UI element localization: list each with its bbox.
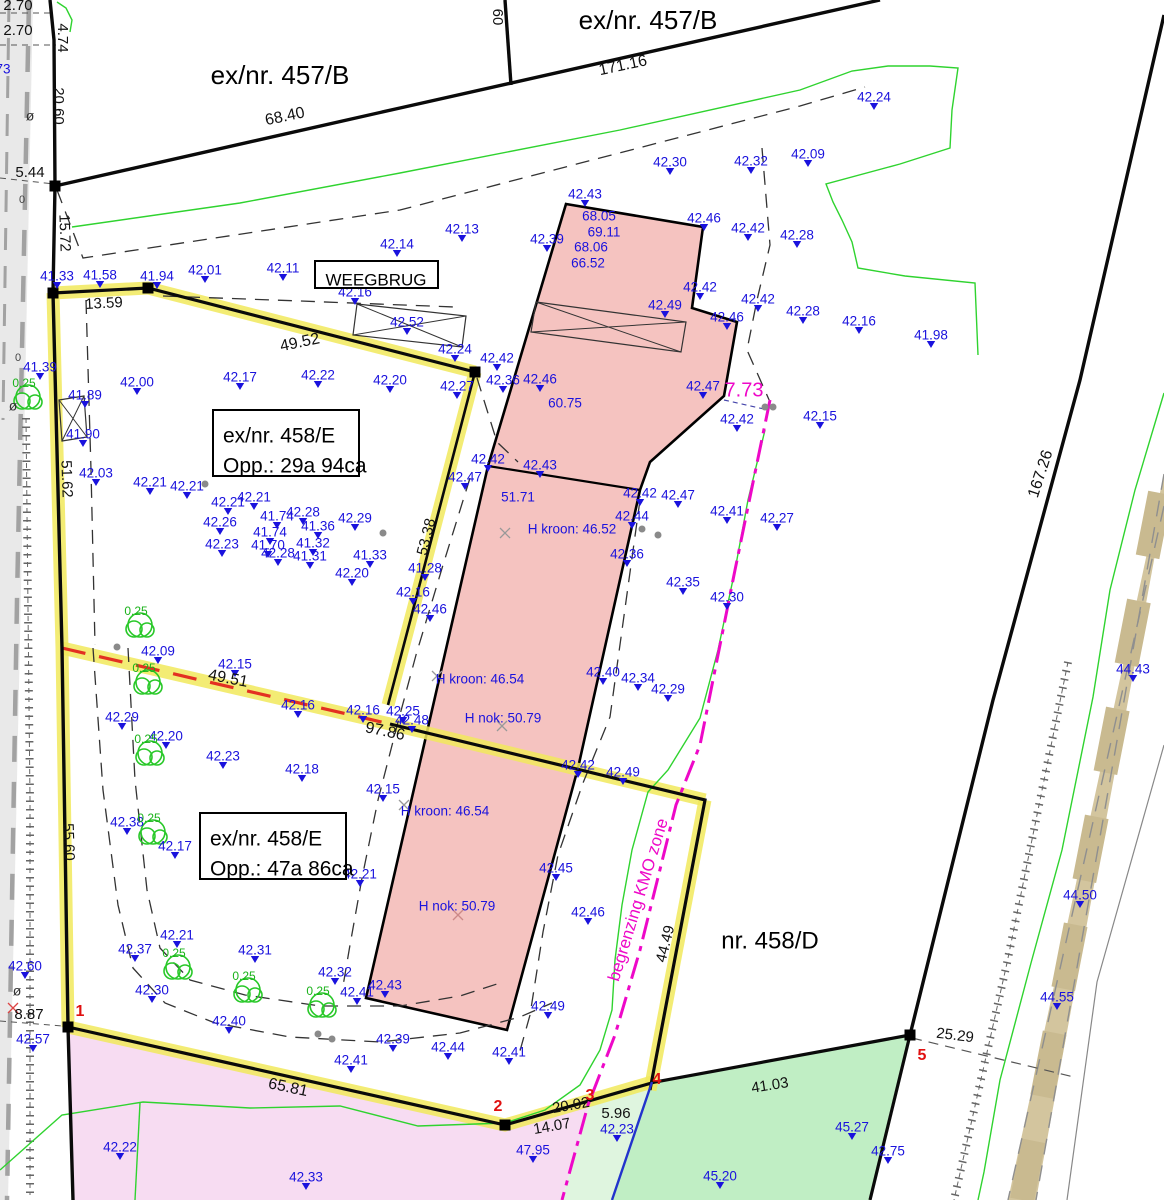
elevation-point-marker-icon bbox=[584, 918, 592, 925]
elevation-point-label: 42.27 bbox=[760, 511, 794, 526]
elevation-point-marker-icon bbox=[347, 1066, 355, 1073]
map-text-label: 2 bbox=[494, 1098, 503, 1115]
elevation-point-marker-icon bbox=[225, 1027, 233, 1034]
elevation-point-label: H kroon: 46.54 bbox=[436, 672, 525, 687]
elevation-point-label: 42.28 bbox=[780, 228, 814, 243]
utility-marker-icon bbox=[329, 1036, 336, 1043]
elevation-point-label: 42.28 bbox=[786, 304, 820, 319]
boundary-monument bbox=[48, 288, 59, 299]
elevation-point-label: 42.39 bbox=[530, 232, 564, 247]
elevation-point-marker-icon bbox=[162, 742, 170, 749]
map-text-label: ø bbox=[26, 108, 35, 124]
elevation-point-label: 42.46 bbox=[571, 905, 605, 920]
elevation-point-marker-icon bbox=[723, 517, 731, 524]
map-text-label: 15.72 bbox=[55, 214, 73, 252]
elevation-point-label: 42.41 bbox=[492, 1045, 526, 1060]
elevation-point-marker-icon bbox=[279, 274, 287, 281]
elevation-point-label: 42.15 bbox=[366, 782, 400, 797]
map-text-label: 0 bbox=[15, 352, 21, 364]
elevation-point-marker-icon bbox=[444, 1053, 452, 1060]
elevation-point-marker-icon bbox=[679, 588, 687, 595]
elevation-point-label: 42.29 bbox=[651, 682, 685, 697]
parcel-info-box-1-text: Opp.: 29a 94ca bbox=[223, 455, 367, 478]
elevation-point-label: 42.43 bbox=[523, 458, 557, 473]
elevation-point-label: 42.20 bbox=[335, 566, 369, 581]
map-text-label: 13.59 bbox=[85, 294, 123, 313]
map-text-label: 5 bbox=[918, 1047, 927, 1064]
utility-marker-icon bbox=[770, 404, 777, 411]
elevation-point-label: 42.42 bbox=[731, 221, 765, 236]
elevation-point-label: 42.21 bbox=[160, 928, 194, 943]
elevation-point-marker-icon bbox=[634, 684, 642, 691]
elevation-point-marker-icon bbox=[81, 401, 89, 408]
elevation-point-marker-icon bbox=[331, 978, 339, 985]
elevation-point-label: 41.58 bbox=[83, 268, 117, 283]
elevation-point-label: 42.30 bbox=[653, 155, 687, 170]
elevation-point-marker-icon bbox=[723, 603, 731, 610]
elevation-point-label: 66.52 bbox=[571, 256, 605, 271]
elevation-point-label: 42.13 bbox=[445, 222, 479, 237]
elevation-point-label: 42.18 bbox=[285, 762, 319, 777]
elevation-point-marker-icon bbox=[219, 762, 227, 769]
elevation-point-label: 41.36 bbox=[301, 519, 335, 534]
elevation-point-label: 68.06 bbox=[574, 240, 608, 255]
boundary-monument bbox=[50, 181, 61, 192]
elevation-point-marker-icon bbox=[236, 383, 244, 390]
elevation-point-marker-icon bbox=[146, 488, 154, 495]
elevation-point-marker-icon bbox=[171, 852, 179, 859]
elevation-point-marker-icon bbox=[458, 235, 466, 242]
elevation-point-marker-icon bbox=[733, 425, 741, 432]
elevation-point-label: 42.33 bbox=[289, 1170, 323, 1185]
elevation-point-label: 42.75 bbox=[871, 1144, 905, 1159]
veg-line-railway bbox=[978, 393, 1164, 1200]
utility-marker-icon bbox=[380, 530, 387, 537]
boundary-monument bbox=[905, 1030, 916, 1041]
elevation-point-label: 42.46 bbox=[710, 310, 744, 325]
elevation-point-label: 42.23 bbox=[205, 537, 239, 552]
elevation-point-label: 42.57 bbox=[16, 1032, 50, 1047]
elevation-point-marker-icon bbox=[274, 559, 282, 566]
map-text-label: 0.25 bbox=[306, 984, 330, 998]
elevation-point-label: H kroon: 46.54 bbox=[401, 804, 490, 819]
elevation-point-label: 42.11 bbox=[267, 261, 300, 276]
elevation-point-label: 42.43 bbox=[568, 187, 602, 202]
elevation-point-label: 42.49 bbox=[606, 765, 640, 780]
elevation-point-marker-icon bbox=[544, 1012, 552, 1019]
map-text-label: 0.25 bbox=[132, 661, 156, 675]
embankment-line-left bbox=[26, 418, 30, 1195]
boundary-monument bbox=[143, 283, 154, 294]
utility-marker-icon bbox=[655, 532, 662, 539]
elevation-point-marker-icon bbox=[251, 956, 259, 963]
elevation-point-label: 42.31 bbox=[238, 943, 272, 958]
elevation-point-label: 42.42 bbox=[720, 412, 754, 427]
map-text-label: 2.70 bbox=[3, 22, 32, 39]
elevation-point-label: 41.28 bbox=[408, 561, 442, 576]
map-text-label: 55.60 bbox=[59, 823, 77, 861]
boundary-monument bbox=[500, 1120, 511, 1131]
elevation-point-label: 42.23 bbox=[206, 749, 240, 764]
elevation-point-label: 44.55 bbox=[1040, 990, 1074, 1005]
elevation-point-marker-icon bbox=[799, 317, 807, 324]
map-text-label: 167.26 bbox=[1025, 448, 1056, 500]
elevation-point-marker-icon bbox=[79, 440, 87, 447]
elevation-point-marker-icon bbox=[298, 775, 306, 782]
elevation-point-marker-icon bbox=[250, 503, 258, 510]
elevation-point-label: 42.21 bbox=[170, 479, 204, 494]
elevation-point-label: 42.41 bbox=[710, 504, 744, 519]
elevation-point-label: 42.42 bbox=[471, 452, 505, 467]
elevation-point-label: 42.17 bbox=[158, 839, 192, 854]
elevation-point-label: 45.20 bbox=[703, 1169, 737, 1184]
elevation-point-marker-icon bbox=[773, 524, 781, 531]
elevation-point-label: 42.39 bbox=[376, 1032, 410, 1047]
elevation-point-marker-icon bbox=[393, 250, 401, 257]
elevation-point-label: 42.32 bbox=[318, 965, 352, 980]
elevation-point-label: 42.23 bbox=[600, 1122, 634, 1137]
map-text-label: 25.29 bbox=[935, 1025, 974, 1046]
utility-marker-icon bbox=[639, 526, 646, 533]
elevation-point-label: 69.11 bbox=[588, 225, 621, 240]
elevation-point-label: 44.43 bbox=[1116, 662, 1150, 677]
map-text-label: 20.60 bbox=[50, 87, 67, 125]
boundary-monument bbox=[63, 1022, 74, 1033]
map-text-label: 5.96 bbox=[601, 1105, 630, 1122]
elevation-point-marker-icon bbox=[927, 341, 935, 348]
elevation-point-label: 41.33 bbox=[353, 548, 387, 563]
elevation-point-marker-icon bbox=[306, 562, 314, 569]
weegbrug-label-box-text: WEEGBRUG bbox=[325, 270, 426, 289]
elevation-point-marker-icon bbox=[747, 167, 755, 174]
map-text-label: 5.44 bbox=[15, 164, 44, 181]
elevation-point-label: 42.42 bbox=[623, 486, 657, 501]
elevation-point-label: H kroon: 46.52 bbox=[528, 522, 617, 537]
elevation-point-label: 45.27 bbox=[835, 1120, 869, 1135]
elevation-point-marker-icon bbox=[201, 276, 209, 283]
elevation-point-label: 42.29 bbox=[338, 511, 372, 526]
elevation-point-marker-icon bbox=[123, 828, 131, 835]
elevation-point-label: 42.01 bbox=[188, 263, 222, 278]
elevation-point-label: 42.42 bbox=[561, 758, 595, 773]
elevation-point-marker-icon bbox=[216, 528, 224, 535]
elevation-point-marker-icon bbox=[505, 1058, 513, 1065]
elevation-point-label: 42.22 bbox=[301, 368, 335, 383]
tie-dash-773 bbox=[724, 400, 764, 409]
elevation-point-label: 41.39 bbox=[23, 360, 57, 375]
elevation-point-label: 42.40 bbox=[586, 665, 620, 680]
elevation-point-label: 42.32 bbox=[734, 154, 768, 169]
elevation-point-label: 42.49 bbox=[648, 298, 682, 313]
elevation-point-label: 42.46 bbox=[413, 602, 447, 617]
elevation-point-label: 42.45 bbox=[539, 861, 573, 876]
elevation-point-label: 42.30 bbox=[710, 590, 744, 605]
old-boundary-dash-3 bbox=[747, 148, 770, 402]
elevation-point-label: 73 bbox=[0, 62, 11, 77]
elevation-point-label: 51.71 bbox=[501, 490, 535, 505]
elevation-point-label: 42.36 bbox=[610, 547, 644, 562]
elevation-point-marker-icon bbox=[92, 479, 100, 486]
elevation-point-label: 41.31 bbox=[293, 549, 327, 564]
elevation-point-label: 41.89 bbox=[68, 388, 102, 403]
elevation-point-label: 42.28 bbox=[286, 505, 320, 520]
elevation-point-label: 44.50 bbox=[1063, 888, 1097, 903]
elevation-point-label: 42.27 bbox=[440, 379, 474, 394]
parcel-info-box-2-text: ex/nr. 458/E bbox=[210, 828, 322, 851]
survey-plan-page: 41.3341.5841.9442.0142.1142.1442.1642.52… bbox=[0, 0, 1164, 1200]
map-text-label: 4.74 bbox=[54, 23, 71, 52]
elevation-point-label: 42.16 bbox=[842, 314, 876, 329]
elevation-point-marker-icon bbox=[36, 373, 44, 380]
boundary-monument bbox=[470, 367, 481, 378]
elevation-point-marker-icon bbox=[118, 723, 126, 730]
elevation-point-marker-icon bbox=[131, 955, 139, 962]
elevation-point-label: 42.15 bbox=[803, 409, 837, 424]
elevation-point-label: 42.52 bbox=[390, 315, 424, 330]
map-text-label: 51.62 bbox=[57, 460, 75, 498]
elevation-point-label: 42.44 bbox=[431, 1040, 465, 1055]
utility-marker-icon bbox=[315, 1031, 322, 1038]
map-text-label: 3 bbox=[586, 1087, 595, 1104]
map-text-label: 171.16 bbox=[597, 52, 649, 79]
map-text-label: 0 bbox=[19, 194, 25, 206]
elevation-point-label: 42.03 bbox=[79, 466, 113, 481]
elevation-point-marker-icon bbox=[351, 524, 359, 531]
elevation-point-label: 42.16 bbox=[396, 585, 430, 600]
elevation-point-marker-icon bbox=[453, 392, 461, 399]
parcel-info-box-1-text: ex/nr. 458/E bbox=[223, 425, 335, 448]
elevation-point-label: 41.33 bbox=[40, 269, 74, 284]
elevation-point-marker-icon bbox=[379, 795, 387, 802]
elevation-point-label: 42.09 bbox=[791, 147, 825, 162]
map-text-label: 8.87 bbox=[14, 1006, 43, 1023]
elevation-point-label: 42.16 bbox=[346, 703, 380, 718]
elevation-point-label: 42.14 bbox=[380, 237, 414, 252]
elevation-point-label: 42.46 bbox=[687, 211, 721, 226]
elevation-point-marker-icon bbox=[804, 160, 812, 167]
elevation-point-label: 42.35 bbox=[666, 575, 700, 590]
elevation-point-marker-icon bbox=[543, 245, 551, 252]
map-text-label: ø bbox=[9, 398, 18, 414]
map-text-label: 0.25 bbox=[162, 946, 186, 960]
elevation-point-label: 42.24 bbox=[438, 342, 472, 357]
elevation-point-marker-icon bbox=[21, 972, 29, 979]
map-text-label: 0.25 bbox=[137, 811, 161, 825]
elevation-point-label: 60.75 bbox=[548, 396, 582, 411]
elevation-point-marker-icon bbox=[386, 386, 394, 393]
elevation-point-label: 42.09 bbox=[141, 644, 175, 659]
elevation-point-marker-icon bbox=[294, 711, 302, 718]
parcel-info-box-2-text: Opp.: 47a 86ca bbox=[210, 858, 354, 881]
veg-line-north bbox=[72, 66, 978, 355]
elevation-point-label: 42.28 bbox=[261, 546, 295, 561]
map-text-label: 0.25 bbox=[232, 969, 256, 983]
map-text-label: nr. 458/D bbox=[721, 927, 818, 954]
elevation-point-marker-icon bbox=[403, 328, 411, 335]
elevation-point-marker-icon bbox=[356, 880, 364, 887]
elevation-point-label: 42.42 bbox=[480, 351, 514, 366]
elevation-point-label: 42.42 bbox=[683, 280, 717, 295]
elevation-point-label: 42.26 bbox=[203, 515, 237, 530]
map-text-label: 7.73 bbox=[725, 379, 764, 401]
elevation-point-label: 42.40 bbox=[212, 1014, 246, 1029]
elevation-point-label: 42.37 bbox=[118, 942, 152, 957]
map-text-label: 0.25 bbox=[134, 732, 158, 746]
elevation-point-label: H nok: 50.79 bbox=[419, 899, 496, 914]
elevation-point-label: 41.90 bbox=[66, 427, 100, 442]
elevation-point-label: 42.00 bbox=[120, 375, 154, 390]
elevation-point-label: 68.05 bbox=[582, 209, 616, 224]
elevation-point-label: 42.21 bbox=[133, 475, 167, 490]
elevation-point-label: 42.42 bbox=[741, 292, 775, 307]
elevation-point-label: 42.29 bbox=[105, 710, 139, 725]
elevation-point-label: 42.24 bbox=[857, 90, 891, 105]
elevation-point-marker-icon bbox=[599, 678, 607, 685]
elevation-point-label: 42.44 bbox=[615, 509, 649, 524]
elevation-point-label: 42.17 bbox=[223, 370, 257, 385]
map-text-label: 0.25 bbox=[124, 604, 148, 618]
elevation-point-marker-icon bbox=[183, 492, 191, 499]
elevation-point-marker-icon bbox=[218, 550, 226, 557]
elevation-point-marker-icon bbox=[884, 1157, 892, 1164]
elevation-point-label: 42.20 bbox=[373, 373, 407, 388]
elevation-point-marker-icon bbox=[696, 293, 704, 300]
map-text-label: ø bbox=[13, 983, 22, 999]
elevation-point-label: 41.98 bbox=[914, 328, 948, 343]
map-text-label: 2.70 bbox=[3, 0, 32, 14]
map-text-label: 60 bbox=[489, 9, 506, 26]
elevation-point-marker-icon bbox=[674, 501, 682, 508]
elevation-point-label: 42.41 bbox=[334, 1053, 368, 1068]
elevation-point-marker-icon bbox=[744, 234, 752, 241]
map-text-label: 0.25 bbox=[12, 376, 36, 390]
elevation-point-marker-icon bbox=[499, 386, 507, 393]
elevation-point-marker-icon bbox=[133, 388, 141, 395]
elevation-point-marker-icon bbox=[855, 327, 863, 334]
plan-svg: 41.3341.5841.9442.0142.1142.1442.1642.52… bbox=[0, 0, 1164, 1200]
map-text-label: 49.52 bbox=[279, 330, 322, 355]
elevation-point-label: 42.43 bbox=[368, 978, 402, 993]
elevation-point-marker-icon bbox=[870, 103, 878, 110]
elevation-point-marker-icon bbox=[793, 241, 801, 248]
map-text-label: 4 bbox=[653, 1071, 662, 1088]
map-text-label: 1 bbox=[76, 1003, 85, 1020]
elevation-point-label: 42.16 bbox=[281, 698, 315, 713]
elevation-point-label: 42.46 bbox=[523, 372, 557, 387]
elevation-point-marker-icon bbox=[816, 422, 824, 429]
utility-marker-icon bbox=[762, 404, 769, 411]
map-text-label: 68.40 bbox=[264, 104, 307, 129]
elevation-point-marker-icon bbox=[314, 381, 322, 388]
elevation-point-label: 42.30 bbox=[135, 983, 169, 998]
utility-marker-icon bbox=[114, 644, 121, 651]
elevation-point-marker-icon bbox=[389, 1045, 397, 1052]
elevation-point-marker-icon bbox=[493, 364, 501, 371]
elevation-point-label: 42.49 bbox=[531, 999, 565, 1014]
elevation-point-label: 42.36 bbox=[486, 373, 520, 388]
elevation-point-label: 42.22 bbox=[103, 1140, 137, 1155]
embankment-ticks-left bbox=[26, 418, 30, 1195]
elevation-point-marker-icon bbox=[148, 996, 156, 1003]
elevation-point-marker-icon bbox=[353, 998, 361, 1005]
railway-outer-line bbox=[1067, 745, 1164, 1200]
elevation-point-marker-icon bbox=[348, 579, 356, 586]
elevation-point-label: 42.47 bbox=[661, 488, 695, 503]
elevation-point-label: 42.47 bbox=[686, 379, 720, 394]
elevation-point-marker-icon bbox=[664, 695, 672, 702]
map-text-label: ex/nr. 457/B bbox=[579, 5, 718, 35]
elevation-point-marker-icon bbox=[666, 168, 674, 175]
elevation-point-label: 42.21 bbox=[237, 490, 271, 505]
elevation-point-label: 47.95 bbox=[516, 1143, 550, 1158]
elevation-point-label: H nok: 50.79 bbox=[465, 711, 542, 726]
map-text-label: ex/nr. 457/B bbox=[211, 60, 350, 90]
elevation-point-label: 42.60 bbox=[8, 959, 42, 974]
elevation-point-label: 42.47 bbox=[448, 470, 482, 485]
elevation-point-label: 41.94 bbox=[140, 269, 174, 284]
